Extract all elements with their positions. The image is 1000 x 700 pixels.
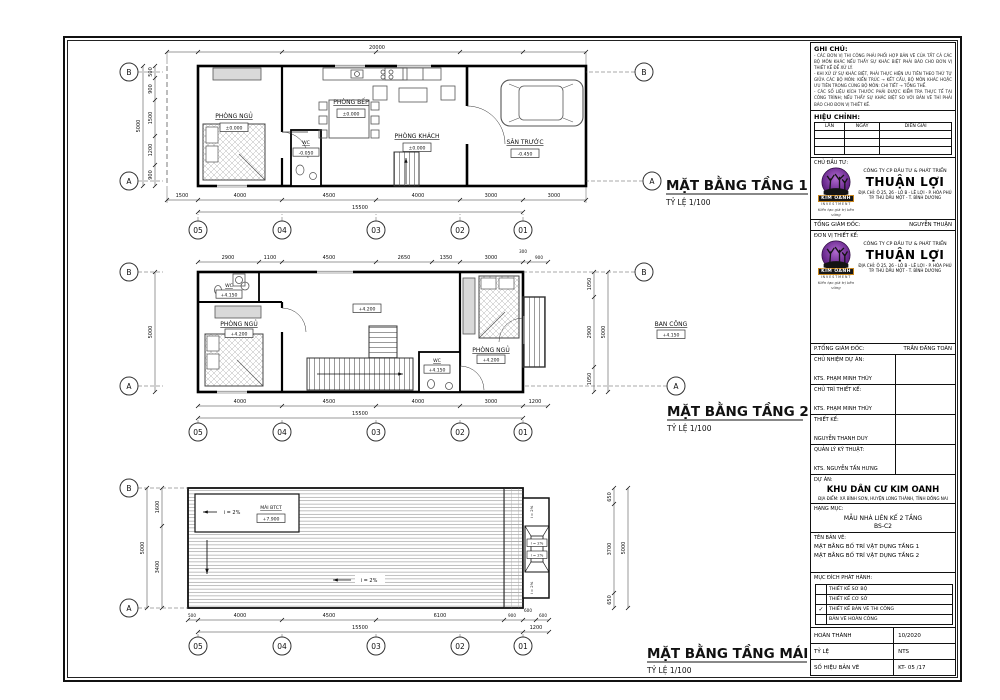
category-line2: BS-C2 bbox=[814, 523, 952, 530]
dim-label: 650 bbox=[607, 595, 613, 605]
svg-text:B: B bbox=[126, 268, 131, 277]
dim-label: 4500 bbox=[323, 399, 336, 405]
dim-label: 1500 bbox=[176, 193, 189, 199]
dim-label: 1050 bbox=[587, 278, 593, 291]
scale-value: NTS bbox=[893, 644, 955, 659]
room-name: SÂN TRƯỚC bbox=[506, 139, 543, 146]
room-name: PHÒNG KHÁCH bbox=[394, 133, 439, 140]
dim-label: 650 bbox=[607, 492, 613, 502]
checkbox-checked: ✓ bbox=[816, 605, 827, 614]
dim-label: 3700 bbox=[607, 543, 613, 556]
role-label: QUẢN LÝ KỸ THUẬT: bbox=[814, 447, 892, 453]
role-value: KTS. PHẠM MINH THÚY bbox=[814, 406, 892, 412]
company-address: TP. THỦ DẦU MỘT - T. BÌNH DƯƠNG bbox=[858, 268, 952, 273]
checkbox bbox=[816, 585, 827, 594]
issue-label: MỤC ĐÍCH PHÁT HÀNH: bbox=[811, 573, 955, 582]
investor-section: CHỦ ĐẦU TƯ: KIM OANH INVESTMENT Kiến tạo… bbox=[811, 158, 955, 220]
dim-label: 3000 bbox=[485, 399, 498, 405]
svg-text:B: B bbox=[641, 268, 646, 277]
role-label: CHỦ TRÌ THIẾT KẾ: bbox=[814, 387, 892, 393]
dim-label: 3000 bbox=[485, 193, 498, 199]
role-label: THIẾT KẾ: bbox=[814, 417, 892, 423]
scale-label: TỶ LỆ bbox=[811, 649, 893, 655]
signature-cell bbox=[895, 415, 955, 444]
slope-label: i = 2% bbox=[529, 505, 534, 518]
designer-section: ĐƠN VỊ THIẾT KẾ: KIM OANH INVESTMENT Kiế… bbox=[811, 231, 955, 344]
dim-label: 500 bbox=[188, 613, 196, 618]
slope-label: i = 2% bbox=[224, 510, 241, 516]
svg-text:-0.050: -0.050 bbox=[299, 150, 314, 156]
svg-text:A: A bbox=[126, 604, 132, 613]
svg-text:+4.150: +4.150 bbox=[220, 292, 237, 298]
svg-text:B: B bbox=[641, 68, 646, 77]
checkbox bbox=[816, 615, 827, 624]
level-tag: +7.900 bbox=[257, 514, 285, 523]
svg-text:+7.900: +7.900 bbox=[262, 517, 279, 523]
svg-text:04: 04 bbox=[277, 428, 287, 437]
deputy-value: TRẦN ĐĂNG TOÀN bbox=[903, 346, 952, 352]
svg-text:02: 02 bbox=[455, 226, 465, 235]
revision-empty-row bbox=[815, 146, 951, 154]
kim-oanh-logo-icon bbox=[821, 240, 851, 270]
svg-text:01: 01 bbox=[518, 642, 528, 651]
logo-tagline: Kiến tạo giá trị bền vững bbox=[814, 280, 858, 290]
level-tag: +4.200 bbox=[477, 355, 505, 364]
room-name: PHÒNG BẾP bbox=[333, 98, 369, 106]
completed-row: HOÀN THÀNH 10/2020 bbox=[811, 628, 955, 644]
title-block: GHI CHÚ: - CÁC ĐƠN VỊ THI CÔNG PHẢI PHỐI… bbox=[810, 42, 956, 676]
dim-label: 900 bbox=[148, 170, 154, 180]
dim-label: 2650 bbox=[398, 255, 411, 261]
logo-subname: INVESTMENT bbox=[821, 202, 852, 206]
completed-label: HOÀN THÀNH bbox=[811, 633, 893, 639]
revision-empty-row bbox=[815, 138, 951, 146]
revision-heading: HIỆU CHỈNH: bbox=[814, 113, 952, 121]
level-tag: +4.150 bbox=[657, 330, 685, 339]
deputy-label: P.TỔNG GIÁM ĐỐC: bbox=[814, 346, 865, 352]
svg-text:±0.000: ±0.000 bbox=[225, 126, 242, 132]
dim-label: 1600 bbox=[155, 501, 161, 514]
level-tag: ±0.000 bbox=[220, 123, 248, 132]
role-row: CHỦ NHIỆM DỰ ÁN:KTS. PHẠM MINH THÚY bbox=[811, 355, 955, 385]
plan-title: MẶT BẰNG TẦNG MÁI bbox=[647, 643, 808, 662]
svg-text:+4.200: +4.200 bbox=[358, 307, 375, 313]
dim-label: 1100 bbox=[264, 255, 277, 261]
dim-label: 300 bbox=[519, 249, 527, 254]
company-type: CÔNG TY CP ĐẦU TƯ & PHÁT TRIỂN bbox=[858, 169, 952, 174]
dim-label: 6100 bbox=[434, 613, 447, 619]
logo-tagline: Kiến tạo giá trị bền vững bbox=[814, 207, 858, 217]
plan-scale: TỶ LỆ 1/100 bbox=[646, 666, 692, 675]
role-row: THIẾT KẾ:NGUYỄN THANH DUY bbox=[811, 415, 955, 445]
company-name: THUẬN LỢI bbox=[858, 175, 952, 189]
plan-scale: TỶ LỆ 1/100 bbox=[666, 424, 712, 433]
roof-edge-strip bbox=[504, 488, 523, 608]
slope-label: i = 2% bbox=[531, 553, 544, 558]
dim-label: 4000 bbox=[412, 193, 425, 199]
sheet-number-value: KT- 05 /17 bbox=[893, 660, 955, 675]
signature-cell bbox=[895, 445, 955, 474]
drawing-line1: MẶT BẰNG BỐ TRÍ VẬT DỤNG TẦNG 1 bbox=[814, 544, 952, 550]
svg-text:±0.000: ±0.000 bbox=[408, 146, 425, 152]
project-name: KHU DÂN CƯ KIM OANH bbox=[814, 485, 952, 495]
svg-text:02: 02 bbox=[455, 428, 465, 437]
roof-hip-section bbox=[523, 498, 549, 598]
level-tag: -0.050 bbox=[293, 148, 319, 156]
dim-label: 2900 bbox=[587, 326, 593, 339]
deputy-director-row: P.TỔNG GIÁM ĐỐC: TRẦN ĐĂNG TOÀN bbox=[811, 344, 955, 355]
room-name: WC bbox=[225, 283, 233, 289]
drawing-line2: MẶT BẰNG BỐ TRÍ VẬT DỤNG TẦNG 2 bbox=[814, 553, 952, 559]
revision-empty-row bbox=[815, 130, 951, 138]
role-row: CHỦ TRÌ THIẾT KẾ:KTS. PHẠM MINH THÚY bbox=[811, 385, 955, 415]
level-tag: +4.200 bbox=[353, 304, 381, 313]
drawing-name-section: TÊN BẢN VẼ: MẶT BẰNG BỐ TRÍ VẬT DỤNG TẦN… bbox=[811, 533, 955, 573]
dim-label: 4500 bbox=[323, 193, 336, 199]
svg-text:03: 03 bbox=[371, 642, 381, 651]
notes-heading: GHI CHÚ: bbox=[814, 45, 952, 53]
plan2-floorplan: 2900 1100 4500 2650 1350 3000 300 900 40… bbox=[120, 249, 809, 441]
company-name: THUẬN LỢI bbox=[858, 248, 952, 262]
completed-value: 10/2020 bbox=[893, 628, 955, 643]
note-line: - CÁC ĐƠN VỊ THI CÔNG PHẢI PHỐI HỢP BẢN … bbox=[814, 53, 952, 71]
kim-oanh-logo-icon bbox=[821, 167, 851, 197]
slope-label: i = 2% bbox=[529, 581, 534, 594]
company-info: CÔNG TY CP ĐẦU TƯ & PHÁT TRIỂN THUẬN LỢI… bbox=[858, 240, 952, 290]
company-address: ĐỊA CHỈ: Ô 25, 26 - LÔ B - LÊ LỢI - P. H… bbox=[858, 263, 952, 268]
checkbox bbox=[816, 595, 827, 604]
roof-label: MÁI BTCT bbox=[260, 504, 282, 511]
issue-options-table: THIẾT KẾ SƠ BỘ THIẾT KẾ CƠ SỞ ✓THIẾT KẾ … bbox=[815, 584, 953, 625]
director-label: TỔNG GIÁM ĐỐC: bbox=[814, 222, 860, 228]
level-tag: +4.150 bbox=[216, 290, 242, 298]
svg-text:A: A bbox=[126, 177, 132, 186]
room-name: WC bbox=[433, 358, 441, 364]
room-name: WC bbox=[302, 140, 310, 146]
drawing-sheet: 20000 1500 4000 4500 4000 3000 3000 1550… bbox=[63, 36, 962, 682]
scale-row: TỶ LỆ NTS bbox=[811, 644, 955, 660]
issue-option: ✓THIẾT KẾ BẢN VẼ THI CÔNG bbox=[816, 604, 952, 614]
svg-text:B: B bbox=[126, 68, 131, 77]
issue-option: BẢN VẼ HOÀN CÔNG bbox=[816, 614, 952, 624]
sheet-number-row: SỐ HIỆU BẢN VẼ KT- 05 /17 bbox=[811, 660, 955, 675]
svg-text:+4.150: +4.150 bbox=[428, 367, 445, 373]
level-tag: ±0.000 bbox=[337, 109, 365, 118]
dim-label: 3000 bbox=[548, 193, 561, 199]
svg-text:A: A bbox=[649, 177, 655, 186]
dim-label: 1050 bbox=[587, 373, 593, 386]
dim-label: 15500 bbox=[352, 625, 368, 631]
issue-option: THIẾT KẾ SƠ BỘ bbox=[816, 585, 952, 594]
room-name: PHÒNG NGỦ bbox=[220, 320, 257, 328]
issue-option: THIẾT KẾ CƠ SỞ bbox=[816, 594, 952, 604]
role-value: KTS. PHẠM MINH THÚY bbox=[814, 376, 892, 382]
dim-label: 4500 bbox=[323, 255, 336, 261]
dim-label: 4500 bbox=[323, 613, 336, 619]
logo-name: KIM OANH bbox=[818, 268, 854, 275]
logo-name: KIM OANH bbox=[818, 195, 854, 202]
level-tag: +4.150 bbox=[424, 365, 450, 373]
director-value: NGUYỄN THUẬN bbox=[909, 222, 952, 228]
revision-table: LẦN NGÀY DIỄN GIẢI bbox=[814, 122, 952, 155]
svg-text:+4.200: +4.200 bbox=[230, 332, 247, 338]
category-section: HẠNG MỤC: MẪU NHÀ LIÊN KẾ 2 TẦNG BS-C2 bbox=[811, 504, 955, 533]
dim-label: 3400 bbox=[155, 561, 161, 574]
dim-label: 600 bbox=[524, 608, 532, 613]
dim-label: 15500 bbox=[352, 411, 368, 417]
revision-header-row: LẦN NGÀY DIỄN GIẢI bbox=[815, 123, 951, 130]
svg-text:B: B bbox=[126, 484, 131, 493]
logo-subname: INVESTMENT bbox=[821, 275, 852, 279]
role-label: CHỦ NHIỆM DỰ ÁN: bbox=[814, 357, 892, 363]
signature-cell bbox=[895, 385, 955, 414]
company-info: CÔNG TY CP ĐẦU TƯ & PHÁT TRIỂN THUẬN LỢI… bbox=[858, 167, 952, 217]
room-name: BAN CÔNG bbox=[655, 321, 688, 328]
issue-purpose-section: MỤC ĐÍCH PHÁT HÀNH: THIẾT KẾ SƠ BỘ THIẾT… bbox=[811, 573, 955, 628]
revision-section: HIỆU CHỈNH: LẦN NGÀY DIỄN GIẢI bbox=[811, 111, 955, 158]
dim-label: 1350 bbox=[440, 255, 453, 261]
dim-label: 1200 bbox=[530, 625, 543, 631]
slope-label: i = 2% bbox=[531, 541, 544, 546]
plan1-floorplan: 20000 1500 4000 4500 4000 3000 3000 1550… bbox=[120, 45, 808, 239]
project-location: ĐỊA ĐIỂM: XÃ BÌNH SƠN, HUYỆN LONG THÀNH,… bbox=[814, 496, 952, 501]
company-logo: KIM OANH INVESTMENT Kiến tạo giá trị bền… bbox=[814, 167, 858, 217]
svg-text:01: 01 bbox=[518, 226, 528, 235]
note-line: - CÁC SỐ LIỆU KÍCH THƯỚC PHẢI ĐƯỢC KIỂM … bbox=[814, 89, 952, 107]
svg-text:03: 03 bbox=[371, 428, 381, 437]
roof-plan: 500 4000 4500 6100 900 600 600 15500 120… bbox=[120, 479, 808, 675]
svg-text:+4.150: +4.150 bbox=[662, 333, 679, 339]
plan-title: MẶT BẰNG TẦNG 1 bbox=[666, 175, 808, 194]
dim-label: 5000 bbox=[621, 542, 627, 555]
company-address: ĐỊA CHỈ: Ô 25, 26 - LÔ B - LÊ LỢI - P. H… bbox=[858, 190, 952, 195]
dim-label: 5000 bbox=[136, 120, 142, 133]
dim-label: 600 bbox=[539, 613, 547, 618]
dim-label: 2900 bbox=[222, 255, 235, 261]
svg-text:02: 02 bbox=[455, 642, 465, 651]
dim-label: 5000 bbox=[601, 326, 607, 339]
svg-text:-0.450: -0.450 bbox=[518, 152, 533, 158]
dim-label: 1200 bbox=[148, 144, 154, 157]
room-name: PHÒNG NGỦ bbox=[472, 346, 509, 354]
svg-text:05: 05 bbox=[193, 428, 203, 437]
svg-text:+4.200: +4.200 bbox=[482, 358, 499, 364]
dim-label: 4000 bbox=[412, 399, 425, 405]
svg-text:04: 04 bbox=[277, 226, 287, 235]
investor-label: CHỦ ĐẦU TƯ: bbox=[814, 160, 952, 166]
role-row: QUẢN LÝ KỸ THUẬT:KTS. NGUYỄN TẤN HƯNG bbox=[811, 445, 955, 475]
dim-label: 4000 bbox=[234, 399, 247, 405]
category-line1: MẪU NHÀ LIÊN KẾ 2 TẦNG bbox=[814, 515, 952, 522]
plan-title: MẶT BẰNG TẦNG 2 bbox=[667, 401, 809, 420]
dim-label: 900 bbox=[508, 613, 516, 618]
svg-text:A: A bbox=[126, 382, 132, 391]
level-tag: -0.450 bbox=[511, 149, 539, 158]
dim-label: 4000 bbox=[234, 193, 247, 199]
svg-text:i = 2%: i = 2% bbox=[361, 578, 378, 584]
role-value: NGUYỄN THANH DUY bbox=[814, 436, 892, 442]
dim-label: 15500 bbox=[352, 205, 368, 211]
svg-text:01: 01 bbox=[518, 428, 528, 437]
project-section: DỰ ÁN: KHU DÂN CƯ KIM OANH ĐỊA ĐIỂM: XÃ … bbox=[811, 475, 955, 504]
sheet-number-label: SỐ HIỆU BẢN VẼ bbox=[811, 665, 893, 671]
level-tag: +4.200 bbox=[225, 329, 253, 338]
role-value: KTS. NGUYỄN TẤN HƯNG bbox=[814, 466, 892, 472]
designer-label: ĐƠN VỊ THIẾT KẾ: bbox=[814, 233, 952, 239]
room-name: PHÒNG NGỦ bbox=[215, 112, 252, 120]
dim-label: 4000 bbox=[234, 613, 247, 619]
signature-cell bbox=[895, 355, 955, 384]
company-address: TP. THỦ DẦU MỘT - T. BÌNH DƯƠNG bbox=[858, 195, 952, 200]
level-tag: ±0.000 bbox=[403, 143, 431, 152]
svg-text:05: 05 bbox=[193, 642, 203, 651]
company-logo: KIM OANH INVESTMENT Kiến tạo giá trị bền… bbox=[814, 240, 858, 290]
roof-flat-zone bbox=[195, 494, 299, 532]
dim-label: 1500 bbox=[148, 112, 154, 125]
category-label: HẠNG MỤC: bbox=[814, 506, 952, 512]
plan-scale: TỶ LỆ 1/100 bbox=[665, 198, 711, 207]
dim-label: 5000 bbox=[140, 542, 146, 555]
note-line: - KHI XỬ LÝ SỰ KHÁC BIỆT, PHẢI THỰC HIỆN… bbox=[814, 71, 952, 89]
project-label: DỰ ÁN: bbox=[814, 477, 952, 483]
svg-text:03: 03 bbox=[371, 226, 381, 235]
svg-text:±0.000: ±0.000 bbox=[342, 112, 359, 118]
notes-section: GHI CHÚ: - CÁC ĐƠN VỊ THI CÔNG PHẢI PHỐI… bbox=[811, 43, 955, 111]
svg-text:A: A bbox=[673, 382, 679, 391]
director-row: TỔNG GIÁM ĐỐC: NGUYỄN THUẬN bbox=[811, 220, 955, 231]
floor-plans-svg: 20000 1500 4000 4500 4000 3000 3000 1550… bbox=[67, 40, 815, 680]
svg-text:05: 05 bbox=[193, 226, 203, 235]
company-type: CÔNG TY CP ĐẦU TƯ & PHÁT TRIỂN bbox=[858, 242, 952, 247]
drawing-label: TÊN BẢN VẼ: bbox=[814, 535, 952, 541]
dim-label: 3000 bbox=[485, 255, 498, 261]
dim-label: 900 bbox=[535, 255, 543, 260]
dim-label: 5000 bbox=[148, 326, 154, 339]
dim-label: 900 bbox=[148, 84, 154, 94]
dim-label: 1200 bbox=[529, 399, 542, 405]
dim-label: 20000 bbox=[369, 45, 385, 51]
svg-text:04: 04 bbox=[277, 642, 287, 651]
